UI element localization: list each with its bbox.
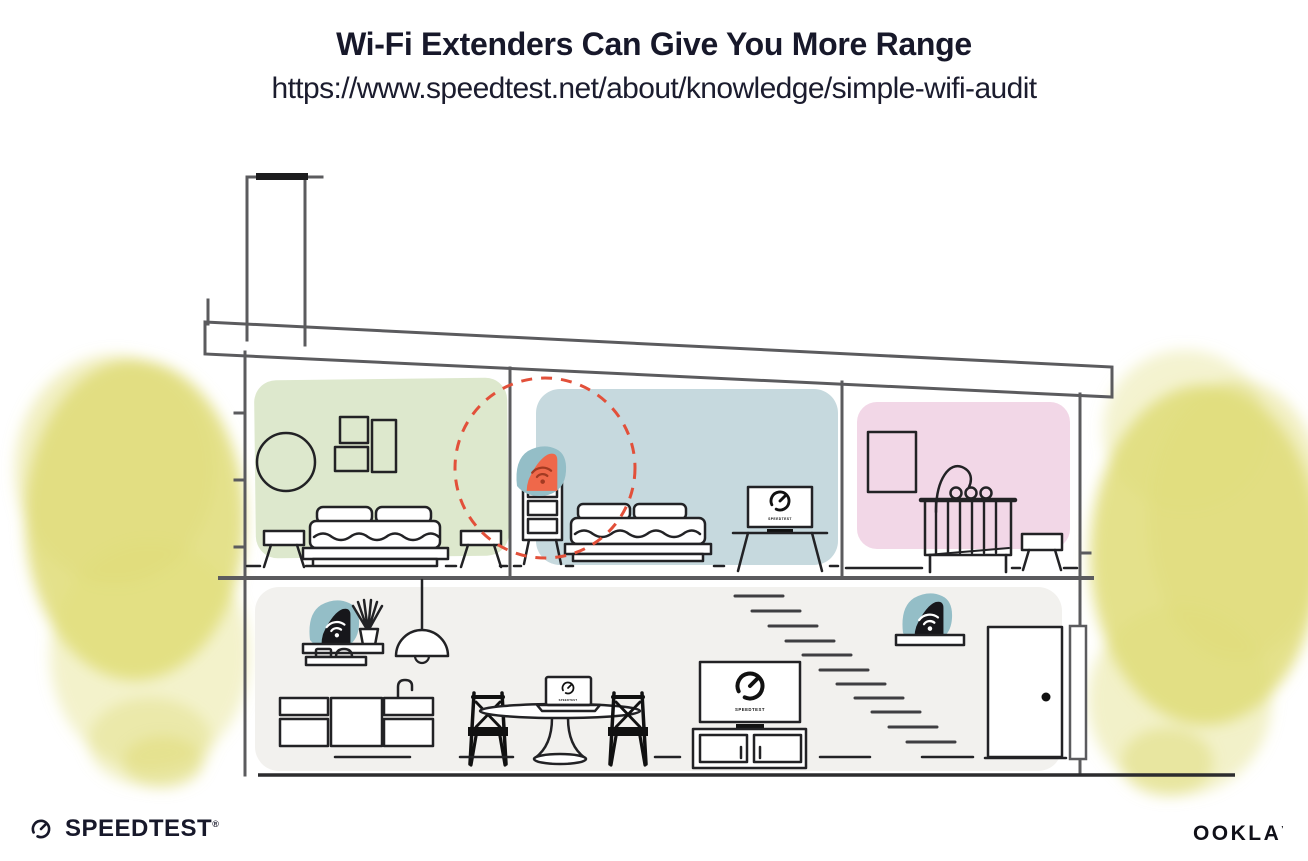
front-door: [988, 627, 1062, 757]
house-cutaway-illustration: SPEEDTEST: [0, 0, 1308, 861]
speedtest-logo: SPEEDTEST®: [26, 814, 219, 844]
trademark-symbol: ’: [1281, 825, 1286, 834]
ookla-logo: OOKLA’: [1193, 822, 1286, 846]
ookla-wordmark: OOKLA: [1193, 822, 1281, 845]
laptop-screen-label: SPEEDTEST: [559, 698, 578, 702]
tv-screen-label: SPEEDTEST: [768, 517, 792, 521]
door-frame-strip: [1070, 626, 1086, 759]
media-console: [693, 729, 806, 768]
infographic-page: Wi-Fi Extenders Can Give You More Range …: [0, 0, 1308, 861]
laptop: SPEEDTEST: [537, 677, 600, 711]
foliage-left: [15, 355, 250, 788]
nursery-pink-wall: [857, 402, 1070, 549]
trademark-symbol: ®: [212, 819, 219, 829]
chimney: [247, 173, 322, 345]
wifi-extender-bedroom: [516, 446, 566, 496]
speedtest-gauge-icon: [26, 814, 56, 844]
shelf-lower: [306, 657, 366, 665]
door-knob: [1042, 693, 1051, 702]
foliage-right: [1088, 350, 1308, 796]
tv-living-room: SPEEDTEST: [700, 662, 800, 729]
shelf: [896, 635, 964, 645]
bed-green: [303, 507, 448, 566]
tv-screen-label: SPEEDTEST: [735, 707, 765, 712]
stool: [1022, 534, 1062, 570]
speedtest-wordmark: SPEEDTEST®: [65, 815, 219, 843]
